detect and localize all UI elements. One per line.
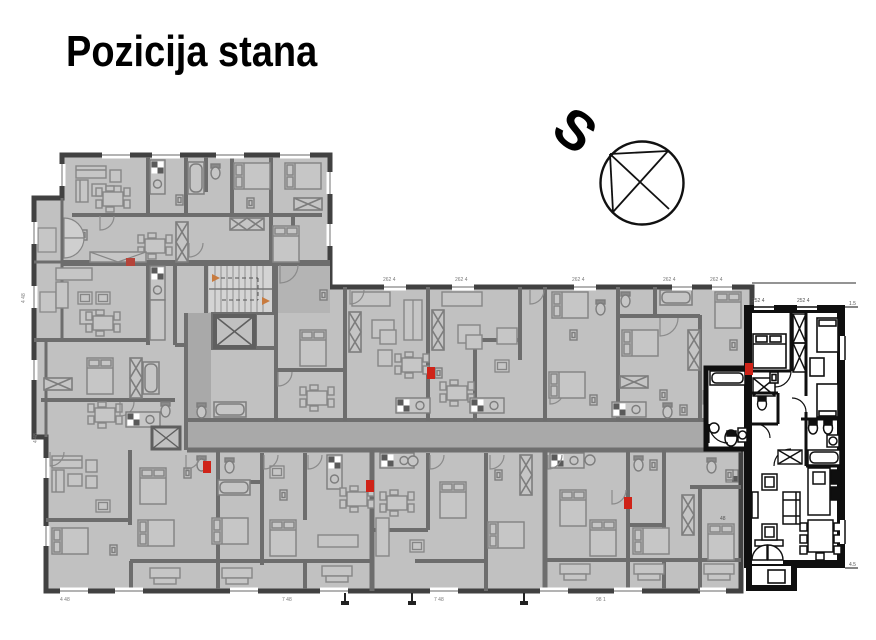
svg-text:4 48: 4 48 [60, 597, 70, 603]
svg-text:252 4: 252 4 [752, 298, 765, 304]
svg-text:262 4: 262 4 [383, 277, 396, 283]
svg-text:7 48: 7 48 [282, 597, 292, 603]
svg-text:98 1: 98 1 [596, 597, 606, 603]
svg-text:262 4: 262 4 [572, 277, 585, 283]
svg-text:262 4: 262 4 [663, 277, 676, 283]
svg-text:262 4: 262 4 [455, 277, 468, 283]
svg-text:4 48: 4 48 [33, 433, 39, 443]
svg-text:48: 48 [720, 516, 726, 522]
svg-text:252 4: 252 4 [797, 298, 810, 304]
svg-text:262 4: 262 4 [710, 277, 723, 283]
svg-text:4.5: 4.5 [849, 562, 856, 568]
svg-text:4 48: 4 48 [21, 293, 27, 303]
svg-text:7 48: 7 48 [434, 597, 444, 603]
svg-text:1.5: 1.5 [849, 301, 856, 307]
svg-text:Pozicija stana: Pozicija stana [66, 27, 318, 76]
